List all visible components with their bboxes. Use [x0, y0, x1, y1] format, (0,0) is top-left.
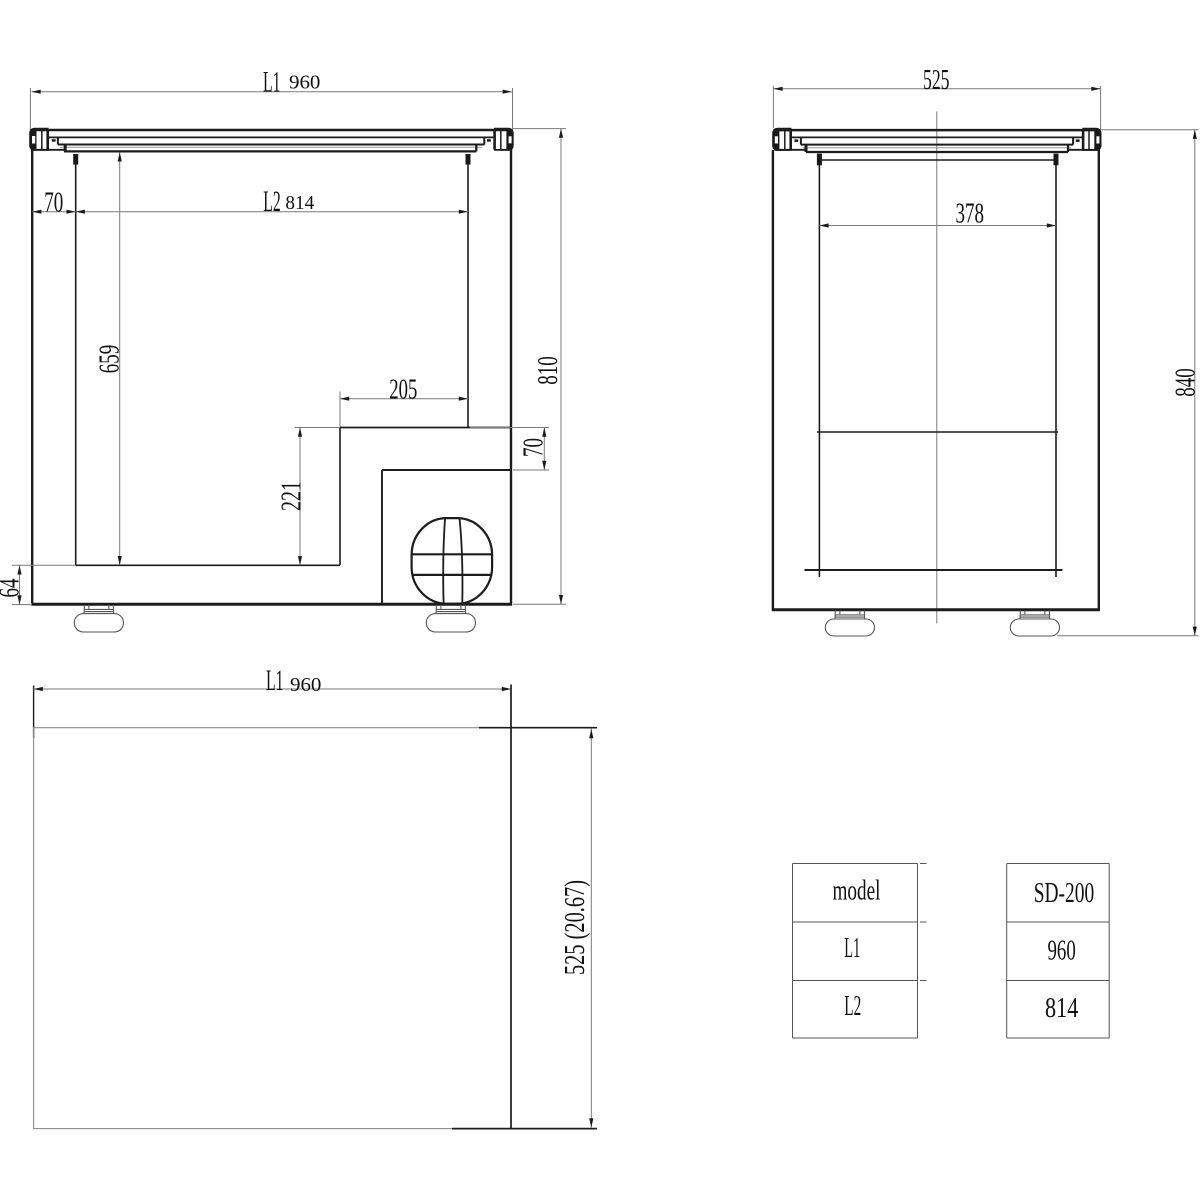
- svg-text:70: 70: [44, 188, 63, 219]
- svg-text:L1: L1: [263, 66, 281, 99]
- svg-text:814: 814: [1045, 993, 1078, 1024]
- svg-text:L1: L1: [844, 933, 860, 964]
- svg-text:205: 205: [389, 374, 417, 405]
- svg-text:810: 810: [533, 356, 564, 385]
- svg-text:L1: L1: [266, 664, 284, 697]
- svg-text:659: 659: [95, 345, 126, 374]
- svg-text:960: 960: [289, 72, 320, 94]
- svg-text:70: 70: [518, 438, 549, 457]
- svg-text:525: 525: [923, 65, 950, 96]
- svg-text:64: 64: [0, 579, 25, 598]
- svg-text:L2: L2: [263, 185, 281, 218]
- svg-text:960: 960: [1048, 935, 1076, 966]
- svg-text:525 (20.67): 525 (20.67): [560, 880, 591, 975]
- svg-text:221: 221: [276, 481, 307, 511]
- svg-text:840: 840: [1170, 368, 1200, 397]
- svg-text:378: 378: [956, 199, 985, 230]
- svg-text:L2: L2: [844, 991, 861, 1022]
- svg-text:960: 960: [290, 674, 321, 696]
- svg-text:SD-200: SD-200: [1034, 878, 1095, 909]
- svg-text:model: model: [833, 876, 881, 907]
- svg-text:814: 814: [285, 192, 314, 214]
